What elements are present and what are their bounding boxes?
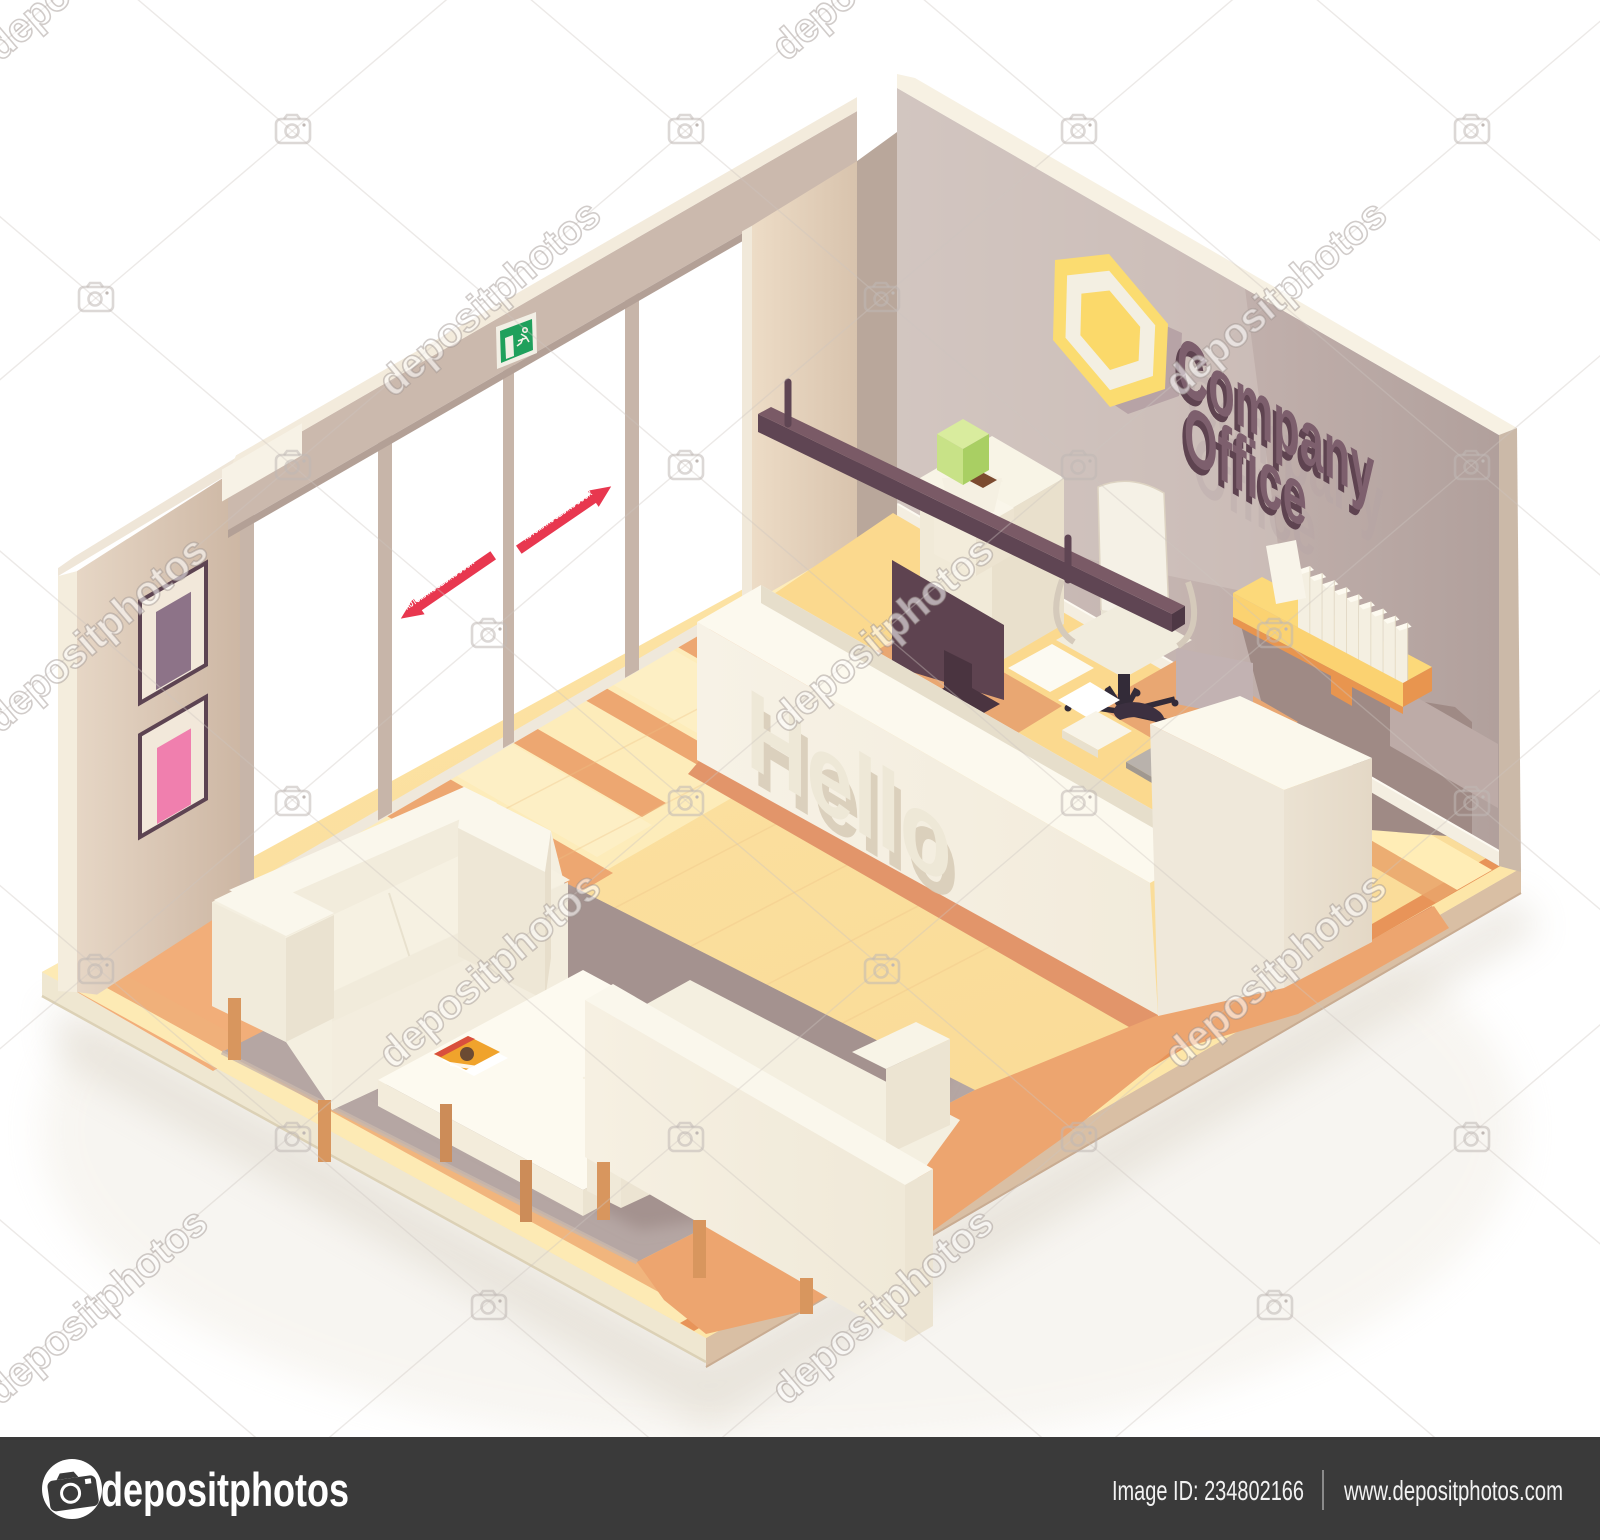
svg-text:depositphotos: depositphotos [101,1463,349,1516]
svg-text:www.depositphotos.com: www.depositphotos.com [1343,1475,1563,1506]
svg-text:Image ID: 234802166: Image ID: 234802166 [1112,1475,1304,1506]
